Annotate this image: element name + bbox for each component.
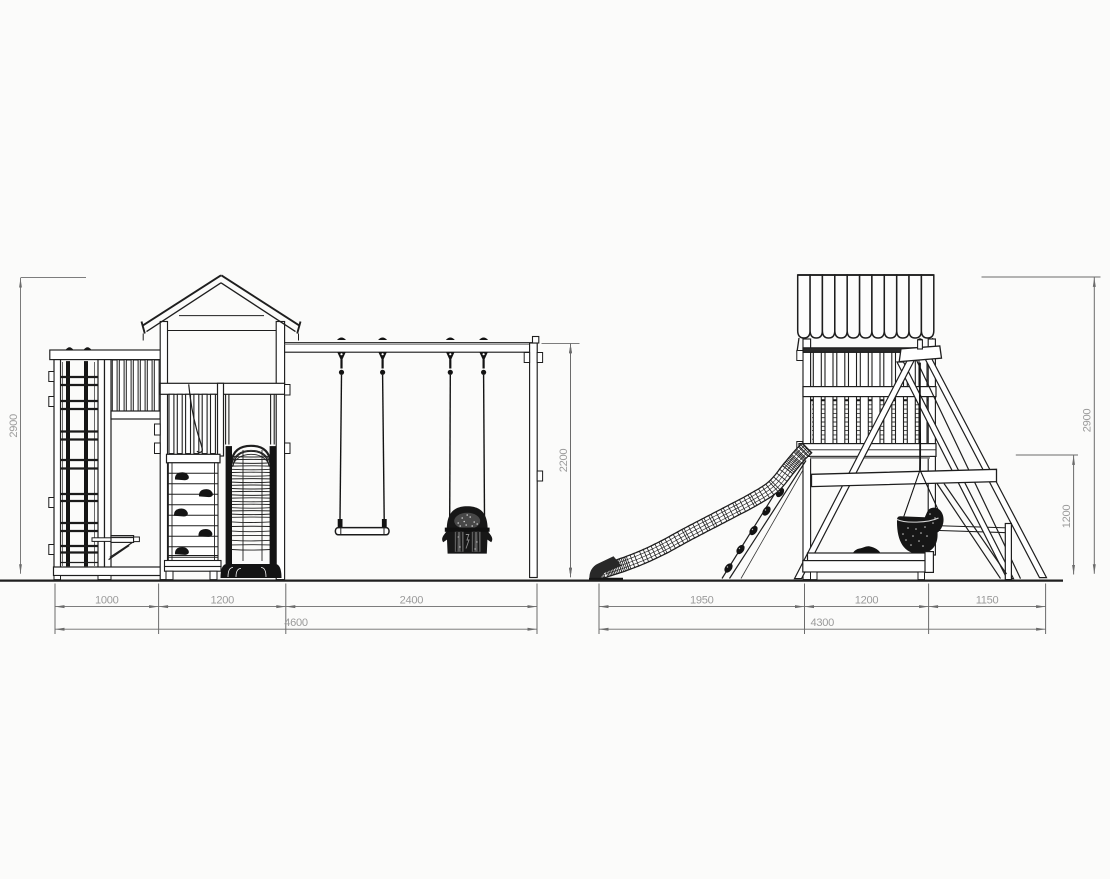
svg-text:2900: 2900 bbox=[1082, 409, 1094, 433]
svg-text:1200: 1200 bbox=[210, 595, 234, 607]
svg-text:1200: 1200 bbox=[855, 595, 879, 607]
svg-text:4600: 4600 bbox=[284, 617, 308, 629]
svg-text:1950: 1950 bbox=[690, 595, 714, 607]
svg-text:2400: 2400 bbox=[400, 595, 424, 607]
svg-text:4300: 4300 bbox=[811, 617, 835, 629]
svg-text:1200: 1200 bbox=[1061, 505, 1073, 529]
svg-text:1000: 1000 bbox=[95, 595, 119, 607]
svg-text:2900: 2900 bbox=[8, 414, 20, 438]
svg-text:1150: 1150 bbox=[976, 595, 999, 607]
svg-text:2200: 2200 bbox=[558, 449, 570, 473]
